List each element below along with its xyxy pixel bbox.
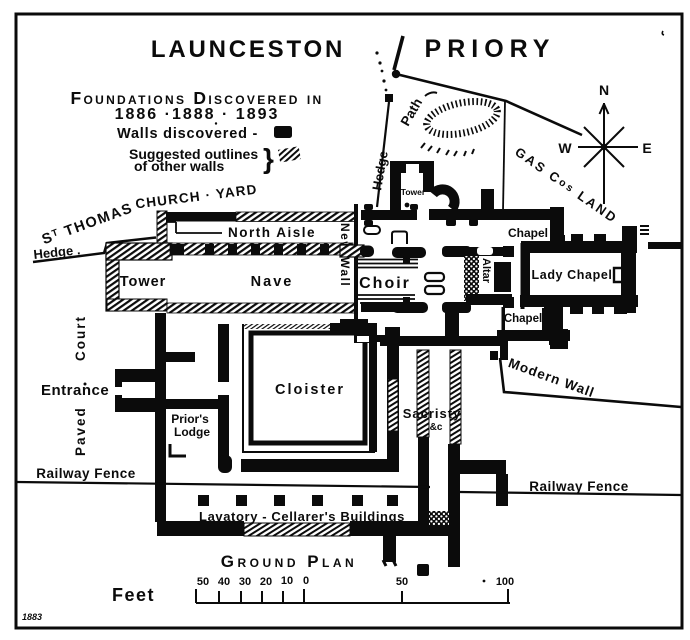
- svg-text:10: 10: [281, 575, 293, 587]
- svg-text:Feet: Feet: [112, 585, 155, 605]
- svg-text:Foundations Discovered in: Foundations Discovered in: [70, 88, 323, 108]
- svg-text:40: 40: [218, 576, 230, 588]
- svg-text:Chapel: Chapel: [508, 226, 548, 240]
- svg-text:Entrance: Entrance: [41, 382, 109, 399]
- svg-text:Court: Court: [73, 315, 88, 361]
- svg-text:1886 ·1888 · 1893: 1886 ·1888 · 1893: [115, 106, 280, 123]
- svg-text:Paved: Paved: [73, 406, 88, 456]
- svg-text:Walls discovered -: Walls discovered -: [117, 126, 258, 142]
- svg-text:0: 0: [303, 575, 309, 587]
- svg-text:of other walls: of other walls: [134, 158, 224, 174]
- svg-text:Tower: Tower: [120, 274, 167, 290]
- svg-text:}: }: [263, 143, 274, 174]
- svg-text:Railway Fence: Railway Fence: [36, 466, 136, 481]
- svg-text:Choir: Choir: [359, 275, 411, 292]
- svg-text:50: 50: [396, 576, 408, 588]
- svg-text:100: 100: [496, 576, 514, 588]
- svg-text:Chapel: Chapel: [504, 313, 542, 325]
- svg-text:Nave: Nave: [251, 274, 294, 290]
- svg-text:Lady Chapel: Lady Chapel: [532, 268, 613, 282]
- svg-text:Ground Plan: Ground Plan: [221, 552, 357, 571]
- svg-text:&c: &c: [430, 422, 443, 433]
- svg-text:Altar: Altar: [480, 258, 492, 284]
- svg-text:30: 30: [239, 576, 251, 588]
- svg-text:W: W: [558, 140, 572, 156]
- svg-text:PRIORY: PRIORY: [425, 35, 556, 63]
- svg-text:LAUNCESTON: LAUNCESTON: [151, 36, 345, 63]
- svg-text:Railway Fence: Railway Fence: [529, 479, 629, 494]
- svg-text:North Aisle: North Aisle: [228, 225, 316, 240]
- svg-text:20: 20: [260, 576, 272, 588]
- svg-text:Prior's: Prior's: [171, 412, 209, 426]
- svg-text:E: E: [642, 140, 651, 156]
- svg-text:1883: 1883: [22, 612, 42, 622]
- svg-text:Tower: Tower: [401, 187, 426, 197]
- svg-text:Cloister: Cloister: [275, 382, 345, 398]
- svg-text:N: N: [599, 82, 609, 98]
- svg-text:Lodge: Lodge: [174, 425, 210, 439]
- svg-text:50: 50: [197, 576, 209, 588]
- svg-text:Sacristy: Sacristy: [403, 406, 462, 421]
